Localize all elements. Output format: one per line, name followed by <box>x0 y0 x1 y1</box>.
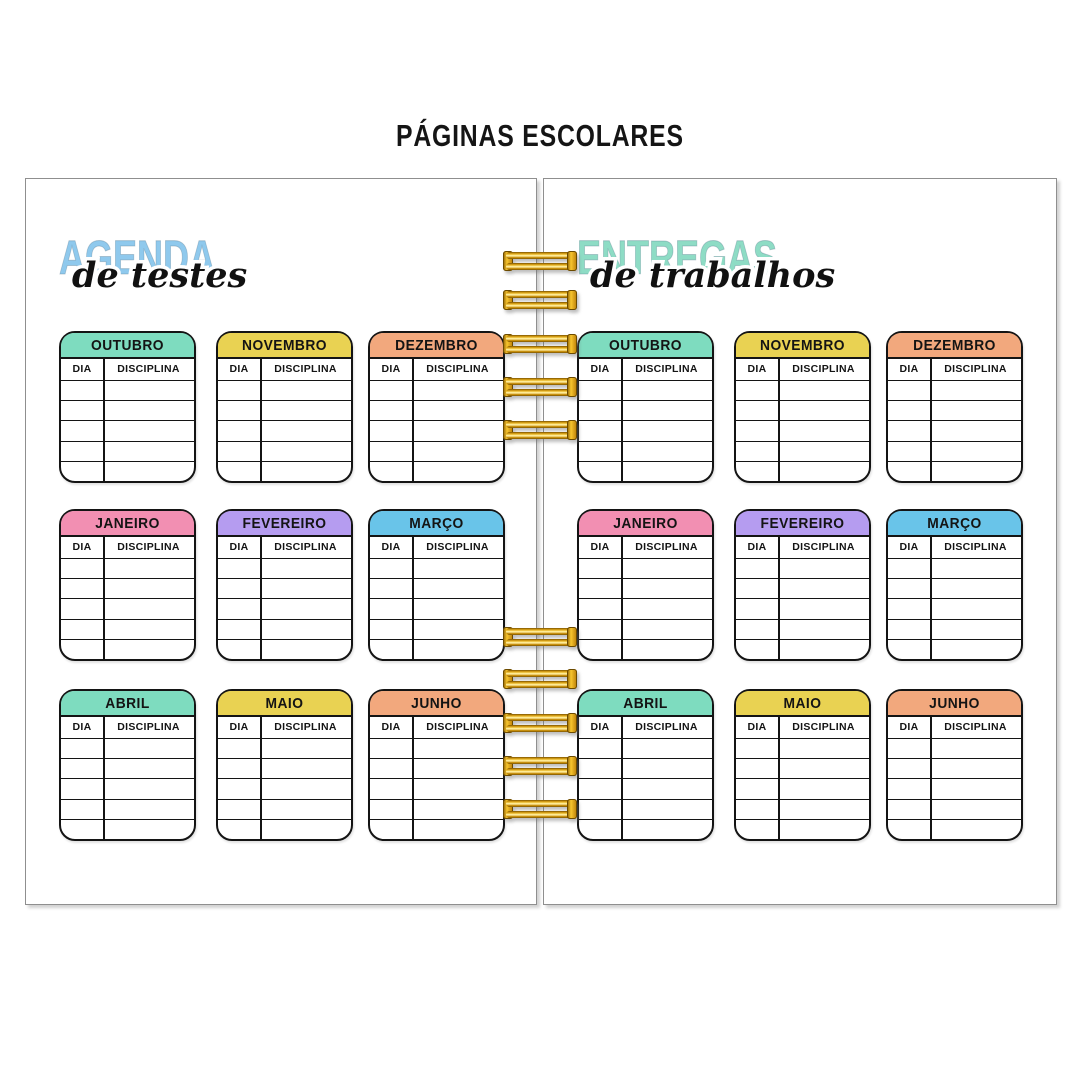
table-header-row: DIA DISCIPLINA <box>736 537 869 559</box>
subject-column-header: DISCIPLINA <box>930 359 1021 380</box>
empty-row <box>370 421 503 441</box>
table-header-row: DIA DISCIPLINA <box>579 537 712 559</box>
month-header: MARÇO <box>888 511 1021 537</box>
day-column-header: DIA <box>579 537 621 558</box>
empty-row <box>218 401 351 421</box>
subject-column-header: DISCIPLINA <box>103 537 194 558</box>
table-header-row: DIA DISCIPLINA <box>370 359 503 381</box>
empty-row <box>579 759 712 779</box>
table-rows <box>579 381 712 481</box>
table-header-row: DIA DISCIPLINA <box>370 717 503 739</box>
subject-column-header: DISCIPLINA <box>412 537 503 558</box>
empty-row <box>61 640 194 659</box>
empty-row <box>736 381 869 401</box>
day-column-header: DIA <box>370 359 412 380</box>
subject-column-header: DISCIPLINA <box>778 359 869 380</box>
month-header: OUTUBRO <box>579 333 712 359</box>
empty-row <box>579 820 712 839</box>
column-divider <box>621 537 623 659</box>
column-divider <box>103 717 105 839</box>
day-column-header: DIA <box>736 537 778 558</box>
month-table: NOVEMBRO DIA DISCIPLINA <box>216 331 353 483</box>
empty-row <box>218 620 351 640</box>
column-divider <box>103 359 105 481</box>
right-page: ENTREGAS de trabalhos de trabalhos OUTUB… <box>543 178 1057 905</box>
empty-row <box>888 462 1021 481</box>
empty-row <box>61 739 194 759</box>
empty-row <box>61 462 194 481</box>
table-rows <box>736 559 869 659</box>
empty-row <box>736 442 869 462</box>
table-rows <box>888 739 1021 839</box>
month-label: FEVEREIRO <box>223 511 345 536</box>
month-label: DEZEMBRO <box>375 333 497 358</box>
month-label: OUTUBRO <box>66 333 188 358</box>
empty-row <box>736 579 869 599</box>
table-rows <box>736 739 869 839</box>
empty-row <box>370 442 503 462</box>
table-header-row: DIA DISCIPLINA <box>888 359 1021 381</box>
month-table: NOVEMBRO DIA DISCIPLINA <box>734 331 871 483</box>
empty-row <box>218 442 351 462</box>
empty-row <box>736 599 869 619</box>
empty-row <box>736 820 869 839</box>
table-rows <box>370 559 503 659</box>
table-header-row: DIA DISCIPLINA <box>218 537 351 559</box>
empty-row <box>579 421 712 441</box>
column-divider <box>103 537 105 659</box>
empty-row <box>370 599 503 619</box>
month-table: ABRIL DIA DISCIPLINA <box>577 689 714 841</box>
month-label: MARÇO <box>375 511 497 536</box>
page-title: PÁGINAS ESCOLARES <box>0 118 1079 154</box>
month-header: OUTUBRO <box>61 333 194 359</box>
column-divider <box>930 359 932 481</box>
month-table: JANEIRO DIA DISCIPLINA <box>577 509 714 661</box>
month-header: JANEIRO <box>579 511 712 537</box>
day-column-header: DIA <box>61 359 103 380</box>
empty-row <box>888 820 1021 839</box>
empty-row <box>370 759 503 779</box>
column-divider <box>260 359 262 481</box>
empty-row <box>736 759 869 779</box>
subject-column-header: DISCIPLINA <box>778 717 869 738</box>
day-column-header: DIA <box>218 359 260 380</box>
month-label: JANEIRO <box>584 511 706 536</box>
month-label: NOVEMBRO <box>741 333 863 358</box>
month-header: JUNHO <box>370 691 503 717</box>
empty-row <box>888 442 1021 462</box>
empty-row <box>736 559 869 579</box>
empty-row <box>888 800 1021 820</box>
empty-row <box>736 800 869 820</box>
empty-row <box>370 640 503 659</box>
empty-row <box>736 421 869 441</box>
left-page-subheading: de testes de testes <box>72 257 247 296</box>
month-label: ABRIL <box>584 691 706 716</box>
empty-row <box>370 381 503 401</box>
month-header: FEVEREIRO <box>736 511 869 537</box>
month-table: JUNHO DIA DISCIPLINA <box>886 689 1023 841</box>
empty-row <box>579 381 712 401</box>
day-column-header: DIA <box>579 717 621 738</box>
month-label: MAIO <box>741 691 863 716</box>
subject-column-header: DISCIPLINA <box>930 717 1021 738</box>
empty-row <box>888 620 1021 640</box>
table-rows <box>61 381 194 481</box>
empty-row <box>579 442 712 462</box>
subject-column-header: DISCIPLINA <box>621 717 712 738</box>
column-divider <box>412 359 414 481</box>
month-header: DEZEMBRO <box>888 333 1021 359</box>
table-header-row: DIA DISCIPLINA <box>61 537 194 559</box>
month-table: JUNHO DIA DISCIPLINA <box>368 689 505 841</box>
empty-row <box>61 800 194 820</box>
column-divider <box>778 717 780 839</box>
empty-row <box>61 779 194 799</box>
empty-row <box>61 421 194 441</box>
table-rows <box>218 559 351 659</box>
day-column-header: DIA <box>370 537 412 558</box>
table-header-row: DIA DISCIPLINA <box>370 537 503 559</box>
month-table: DEZEMBRO DIA DISCIPLINA <box>886 331 1023 483</box>
subject-column-header: DISCIPLINA <box>412 717 503 738</box>
subject-column-header: DISCIPLINA <box>412 359 503 380</box>
empty-row <box>579 800 712 820</box>
month-table: MAIO DIA DISCIPLINA <box>734 689 871 841</box>
month-label: JUNHO <box>893 691 1015 716</box>
table-rows <box>370 381 503 481</box>
month-header: ABRIL <box>579 691 712 717</box>
day-column-header: DIA <box>61 717 103 738</box>
month-table: ABRIL DIA DISCIPLINA <box>59 689 196 841</box>
subject-column-header: DISCIPLINA <box>260 537 351 558</box>
empty-row <box>370 559 503 579</box>
column-divider <box>412 717 414 839</box>
column-divider <box>930 717 932 839</box>
month-label: JANEIRO <box>66 511 188 536</box>
empty-row <box>888 779 1021 799</box>
subject-column-header: DISCIPLINA <box>621 537 712 558</box>
empty-row <box>61 579 194 599</box>
month-table: FEVEREIRO DIA DISCIPLINA <box>734 509 871 661</box>
subject-column-header: DISCIPLINA <box>778 537 869 558</box>
empty-row <box>218 579 351 599</box>
day-column-header: DIA <box>579 359 621 380</box>
left-subheading-text: de testes <box>72 255 247 296</box>
table-rows <box>888 559 1021 659</box>
subject-column-header: DISCIPLINA <box>930 537 1021 558</box>
empty-row <box>579 779 712 799</box>
subject-column-header: DISCIPLINA <box>260 717 351 738</box>
month-header: ABRIL <box>61 691 194 717</box>
empty-row <box>218 820 351 839</box>
empty-row <box>579 640 712 659</box>
empty-row <box>218 759 351 779</box>
empty-row <box>218 599 351 619</box>
month-label: JUNHO <box>375 691 497 716</box>
empty-row <box>61 401 194 421</box>
table-header-row: DIA DISCIPLINA <box>218 717 351 739</box>
month-header: MARÇO <box>370 511 503 537</box>
column-divider <box>930 537 932 659</box>
empty-row <box>218 800 351 820</box>
empty-row <box>888 381 1021 401</box>
empty-row <box>888 640 1021 659</box>
month-table: OUTUBRO DIA DISCIPLINA <box>59 331 196 483</box>
empty-row <box>579 559 712 579</box>
subject-column-header: DISCIPLINA <box>621 359 712 380</box>
table-rows <box>61 739 194 839</box>
empty-row <box>61 820 194 839</box>
day-column-header: DIA <box>888 717 930 738</box>
table-header-row: DIA DISCIPLINA <box>888 537 1021 559</box>
empty-row <box>218 559 351 579</box>
table-header-row: DIA DISCIPLINA <box>888 717 1021 739</box>
empty-row <box>218 739 351 759</box>
table-header-row: DIA DISCIPLINA <box>61 359 194 381</box>
empty-row <box>61 620 194 640</box>
right-page-subheading: de trabalhos de trabalhos <box>590 257 835 296</box>
month-label: OUTUBRO <box>584 333 706 358</box>
subject-column-header: DISCIPLINA <box>260 359 351 380</box>
month-label: MARÇO <box>893 511 1015 536</box>
column-divider <box>778 537 780 659</box>
table-rows <box>370 739 503 839</box>
month-header: MAIO <box>218 691 351 717</box>
empty-row <box>888 401 1021 421</box>
month-header: NOVEMBRO <box>736 333 869 359</box>
table-header-row: DIA DISCIPLINA <box>61 717 194 739</box>
day-column-header: DIA <box>61 537 103 558</box>
empty-row <box>736 620 869 640</box>
column-divider <box>778 359 780 481</box>
table-header-row: DIA DISCIPLINA <box>736 359 869 381</box>
table-rows <box>736 381 869 481</box>
right-subheading-text: de trabalhos <box>590 255 835 296</box>
column-divider <box>412 537 414 659</box>
empty-row <box>370 401 503 421</box>
empty-row <box>888 739 1021 759</box>
month-header: NOVEMBRO <box>218 333 351 359</box>
empty-row <box>579 401 712 421</box>
month-header: FEVEREIRO <box>218 511 351 537</box>
month-header: JANEIRO <box>61 511 194 537</box>
month-label: FEVEREIRO <box>741 511 863 536</box>
table-rows <box>579 739 712 839</box>
empty-row <box>579 462 712 481</box>
column-divider <box>260 537 262 659</box>
month-table: MARÇO DIA DISCIPLINA <box>886 509 1023 661</box>
month-header: DEZEMBRO <box>370 333 503 359</box>
empty-row <box>370 620 503 640</box>
empty-row <box>736 462 869 481</box>
table-rows <box>579 559 712 659</box>
subject-column-header: DISCIPLINA <box>103 359 194 380</box>
subject-column-header: DISCIPLINA <box>103 717 194 738</box>
table-header-row: DIA DISCIPLINA <box>218 359 351 381</box>
empty-row <box>61 759 194 779</box>
empty-row <box>370 739 503 759</box>
month-table: JANEIRO DIA DISCIPLINA <box>59 509 196 661</box>
column-divider <box>621 359 623 481</box>
table-rows <box>218 739 351 839</box>
left-page: AGENDA de testes de testes OUTUBRO DIA D… <box>25 178 537 905</box>
day-column-header: DIA <box>218 717 260 738</box>
empty-row <box>579 739 712 759</box>
empty-row <box>370 820 503 839</box>
day-column-header: DIA <box>888 537 930 558</box>
month-label: ABRIL <box>66 691 188 716</box>
empty-row <box>888 421 1021 441</box>
empty-row <box>736 640 869 659</box>
empty-row <box>888 759 1021 779</box>
empty-row <box>579 579 712 599</box>
empty-row <box>61 559 194 579</box>
table-header-row: DIA DISCIPLINA <box>736 717 869 739</box>
month-table: DEZEMBRO DIA DISCIPLINA <box>368 331 505 483</box>
month-header: JUNHO <box>888 691 1021 717</box>
empty-row <box>736 401 869 421</box>
table-header-row: DIA DISCIPLINA <box>579 359 712 381</box>
month-label: MAIO <box>223 691 345 716</box>
empty-row <box>579 599 712 619</box>
empty-row <box>370 800 503 820</box>
empty-row <box>218 640 351 659</box>
day-column-header: DIA <box>736 359 778 380</box>
column-divider <box>260 717 262 839</box>
empty-row <box>218 421 351 441</box>
day-column-header: DIA <box>888 359 930 380</box>
empty-row <box>370 579 503 599</box>
empty-row <box>888 559 1021 579</box>
day-column-header: DIA <box>370 717 412 738</box>
empty-row <box>218 381 351 401</box>
month-table: MAIO DIA DISCIPLINA <box>216 689 353 841</box>
month-label: DEZEMBRO <box>893 333 1015 358</box>
empty-row <box>579 620 712 640</box>
empty-row <box>736 779 869 799</box>
empty-row <box>888 599 1021 619</box>
empty-row <box>61 381 194 401</box>
empty-row <box>218 779 351 799</box>
empty-row <box>370 462 503 481</box>
table-rows <box>888 381 1021 481</box>
day-column-header: DIA <box>218 537 260 558</box>
table-rows <box>218 381 351 481</box>
month-label: NOVEMBRO <box>223 333 345 358</box>
empty-row <box>888 579 1021 599</box>
column-divider <box>621 717 623 839</box>
month-table: MARÇO DIA DISCIPLINA <box>368 509 505 661</box>
empty-row <box>61 442 194 462</box>
month-table: OUTUBRO DIA DISCIPLINA <box>577 331 714 483</box>
empty-row <box>370 779 503 799</box>
empty-row <box>61 599 194 619</box>
day-column-header: DIA <box>736 717 778 738</box>
empty-row <box>218 462 351 481</box>
table-rows <box>61 559 194 659</box>
table-header-row: DIA DISCIPLINA <box>579 717 712 739</box>
empty-row <box>736 739 869 759</box>
month-table: FEVEREIRO DIA DISCIPLINA <box>216 509 353 661</box>
month-header: MAIO <box>736 691 869 717</box>
